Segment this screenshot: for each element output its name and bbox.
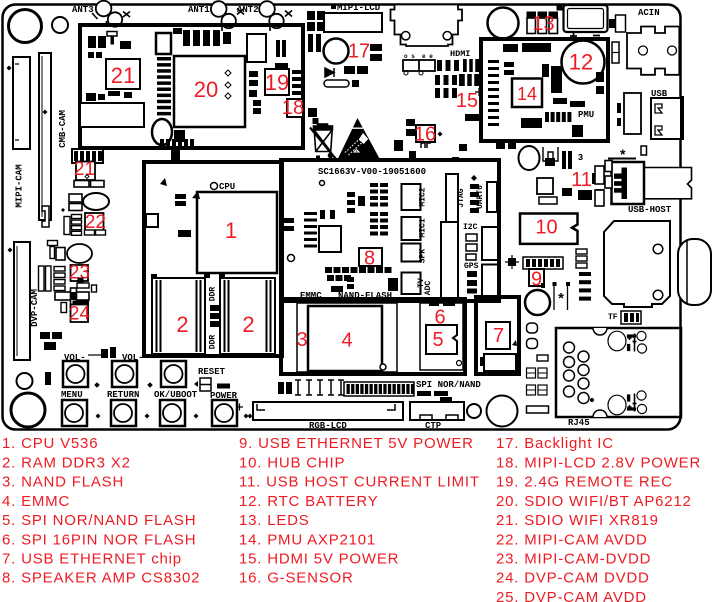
svg-text:DVP-CAM: DVP-CAM [30,289,40,327]
svg-text:SPK: SPK [419,249,428,264]
svg-text:*: * [620,146,626,162]
svg-text:[ 3: [ 3 [567,153,583,163]
svg-text:24. DVP-CAM DVDD: 24. DVP-CAM DVDD [496,570,650,587]
svg-text:16: 16 [414,124,436,146]
svg-text:11. USB HOST CURRENT LIMIT: 11. USB HOST CURRENT LIMIT [239,474,480,491]
svg-text:6. SPI 16PIN NOR FLASH: 6. SPI 16PIN NOR FLASH [2,531,196,548]
svg-text:1. CPU V536: 1. CPU V536 [2,435,98,452]
svg-text:21: 21 [111,63,135,88]
svg-text:15. HDMI 5V POWER: 15. HDMI 5V POWER [239,551,399,568]
svg-text:11: 11 [571,169,592,191]
svg-text:17. Backlight IC: 17. Backlight IC [496,435,614,452]
svg-text:14: 14 [517,84,537,104]
svg-text:ANT1: ANT1 [188,5,210,15]
svg-text:22. MIPI-CAM AVDD: 22. MIPI-CAM AVDD [496,531,648,548]
svg-text:I2C: I2C [463,223,478,232]
svg-text:5. SPI NOR/NAND FLASH: 5. SPI NOR/NAND FLASH [2,512,196,529]
svg-text:4. EMMC: 4. EMMC [2,493,70,510]
svg-text:21: 21 [74,159,95,180]
svg-text:15: 15 [456,90,478,112]
svg-text:ANT3: ANT3 [72,5,94,15]
svg-text:JTAG: JTAG [457,188,466,207]
svg-text:19. 2.4G REMOTE REC: 19. 2.4G REMOTE REC [496,474,673,491]
svg-text:12. RTC BATTERY: 12. RTC BATTERY [239,493,379,510]
svg-text:5: 5 [432,329,443,351]
svg-text:DDR: DDR [209,335,218,350]
svg-text:1: 1 [225,218,237,243]
svg-text:25. DVP-CAM AVDD: 25. DVP-CAM AVDD [496,589,647,602]
svg-text:DDR: DDR [209,287,218,302]
svg-text:2: 2 [242,312,254,337]
svg-text:SPI NOR/NAND: SPI NOR/NAND [416,380,481,390]
svg-text:18. MIPI-LCD 2.8V POWER: 18. MIPI-LCD 2.8V POWER [496,454,701,471]
svg-text:2. RAM DDR3 X2: 2. RAM DDR3 X2 [2,454,131,471]
svg-text:3. NAND FLASH: 3. NAND FLASH [2,474,124,491]
svg-text:RETURN: RETURN [107,390,139,400]
svg-text:ACIN: ACIN [638,8,660,18]
svg-text:21. SDIO WIFI XR819: 21. SDIO WIFI XR819 [496,512,659,529]
svg-text:7: 7 [493,325,504,347]
svg-text:ANT2: ANT2 [237,5,259,15]
svg-text:MIPI-CAM: MIPI-CAM [15,164,25,207]
svg-text:MENU: MENU [61,390,83,400]
svg-text:10: 10 [535,217,557,239]
svg-text:MIC2: MIC2 [419,187,428,206]
svg-text:USB-HOST: USB-HOST [628,205,672,215]
svg-text:18: 18 [282,97,304,119]
svg-text:o s e e: o s e e [404,53,433,60]
svg-text:MIPI-LCD: MIPI-LCD [337,3,381,13]
svg-text:24: 24 [69,304,91,325]
svg-text:23. MIPI-CAM-DVDD: 23. MIPI-CAM-DVDD [496,551,651,568]
svg-text:13: 13 [532,13,554,35]
svg-text:12: 12 [569,50,593,75]
svg-text:4: 4 [341,330,352,352]
svg-text:RJ45: RJ45 [568,418,590,428]
svg-text:CTP: CTP [425,421,442,431]
svg-text:*: * [558,290,564,307]
svg-text:9. USB ETHERNET 5V POWER: 9. USB ETHERNET 5V POWER [239,435,474,452]
svg-text:8. SPEAKER AMP CS8302: 8. SPEAKER AMP CS8302 [2,570,200,587]
svg-text:3: 3 [296,329,307,351]
svg-text:PMU: PMU [578,110,594,120]
svg-text:17: 17 [348,41,370,63]
svg-text:CPU: CPU [219,182,235,192]
svg-text:16. G-SENSOR: 16. G-SENSOR [239,570,354,587]
svg-text:14. PMU AXP2101: 14. PMU AXP2101 [239,531,376,548]
svg-text:GPS: GPS [464,262,479,271]
svg-text:19: 19 [265,70,289,95]
svg-text:20: 20 [194,77,218,102]
svg-text:SC1663V-V00-19051600: SC1663V-V00-19051600 [318,167,426,177]
svg-text:13. LEDS: 13. LEDS [239,512,310,529]
svg-text:RESET: RESET [198,367,226,377]
svg-text:9: 9 [531,269,542,291]
svg-text:8: 8 [364,248,375,270]
svg-text:CMB-CAM: CMB-CAM [58,110,68,148]
svg-text:RGB-LCD: RGB-LCD [309,421,347,431]
svg-text:HDMI: HDMI [450,49,470,59]
svg-text:20. SDIO WIFI/BT AP6212: 20. SDIO WIFI/BT AP6212 [496,493,692,510]
svg-text:MIC1: MIC1 [419,218,428,237]
svg-text:TF: TF [608,313,618,322]
svg-text:2: 2 [176,312,188,337]
svg-text:OK/UBOOT: OK/UBOOT [154,390,198,400]
svg-text:ADC: ADC [424,281,433,296]
svg-text:10. HUB CHIP: 10. HUB CHIP [239,454,345,471]
svg-text:7. USB ETHERNET chip: 7. USB ETHERNET chip [2,551,182,568]
